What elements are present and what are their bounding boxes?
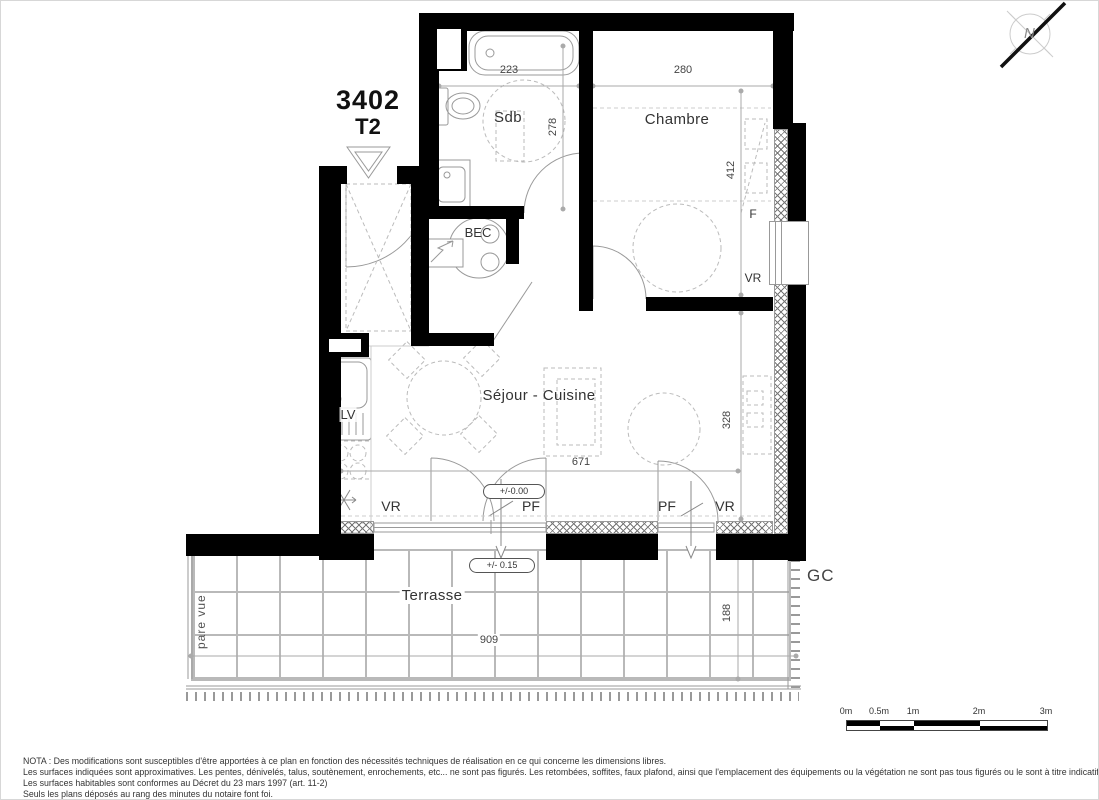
dishwasher-label: LV (340, 407, 357, 422)
wall (186, 534, 331, 556)
note-line-2: Les surfaces indiquées sont approximativ… (23, 767, 1099, 777)
wall-insulation (716, 521, 773, 534)
wall-insulation (546, 521, 658, 534)
scale-bar (846, 720, 1048, 731)
wall (411, 184, 429, 346)
dim-terrace-depth: 188 (721, 604, 733, 622)
room-label-living-kitchen: Séjour - Cuisine (482, 387, 595, 404)
toilet-icon (435, 88, 480, 125)
bed (633, 119, 767, 292)
dim-living-depth: 328 (721, 411, 733, 429)
wall (579, 31, 593, 309)
shutter-label: VR (715, 498, 734, 514)
level-terrace: +/- 0.15 (469, 558, 535, 573)
note-line-4: Seuls les plans déposés au rang des minu… (23, 789, 273, 799)
dim-bedroom-width: 280 (674, 64, 692, 76)
privacy-screen-label: pare vue (194, 563, 208, 649)
duct-niche (437, 29, 461, 69)
wall (429, 333, 494, 346)
entry-triangle-icon (347, 147, 390, 178)
entry-closet (346, 184, 411, 331)
armchair (628, 393, 700, 465)
window-label: F (749, 207, 756, 221)
wall (579, 297, 593, 311)
north-label: N (1024, 25, 1035, 42)
level-interior: +/-0.00 (483, 484, 545, 499)
electric-panel-icon (425, 239, 463, 267)
scale-label-05: 0.5m (869, 706, 889, 716)
floor-plan-page: 3402 T2 Sdb Chambre Séjour - Cuisine Ter… (0, 0, 1099, 800)
dim-bathroom-depth: 278 (547, 118, 559, 136)
water-heater-label: BEC (465, 225, 492, 240)
bedroom-window (769, 221, 809, 285)
shutter-label: VR (381, 498, 400, 514)
wall (397, 166, 439, 184)
wall-insulation (774, 129, 788, 534)
wall (419, 13, 794, 31)
unit-number: 3402 (336, 85, 400, 116)
french-door-label: PF (658, 498, 676, 514)
wall (506, 206, 519, 264)
gc-label: GC (807, 566, 835, 586)
scale-label-3: 3m (1040, 706, 1053, 716)
sideboard (544, 368, 601, 456)
wall (646, 297, 773, 311)
unit-type: T2 (355, 114, 381, 140)
wall (716, 534, 806, 560)
room-label-terrace: Terrasse (400, 587, 465, 604)
room-label-bathroom: Sdb (494, 109, 522, 126)
duct-niche (329, 339, 361, 352)
wall (319, 166, 347, 184)
dim-bathroom-width: 223 (500, 64, 518, 76)
wall (788, 123, 806, 561)
dim-bedroom-depth: 412 (725, 161, 737, 179)
dim-terrace-width: 909 (478, 634, 500, 646)
door-swings (346, 153, 718, 521)
glazing-lines (374, 520, 714, 534)
shutter-label: VR (745, 271, 762, 285)
desk (743, 376, 771, 454)
dim-living-width: 671 (572, 456, 590, 468)
room-label-bedroom: Chambre (645, 111, 710, 128)
wall (546, 534, 658, 560)
scale-label-2: 2m (973, 706, 986, 716)
french-door-label: PF (522, 498, 540, 514)
dimension-lines (189, 44, 798, 681)
scale-label-1: 1m (907, 706, 920, 716)
wall (773, 13, 793, 129)
note-line-1: NOTA : Des modifications sont susceptibl… (23, 756, 666, 766)
note-line-3: Les surfaces habitables sont conformes a… (23, 778, 327, 788)
scale-label-0: 0m (840, 706, 853, 716)
